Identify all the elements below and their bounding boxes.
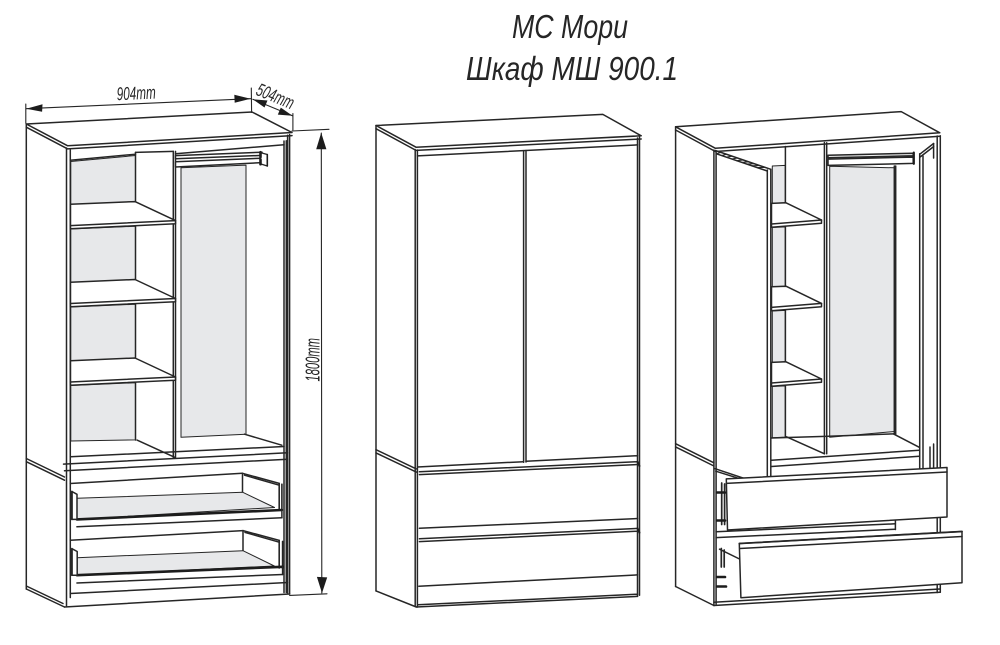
svg-text:504mm: 504mm <box>253 79 297 113</box>
svg-text:904mm: 904mm <box>116 82 156 105</box>
svg-text:Шкаф МШ 900.1: Шкаф МШ 900.1 <box>466 50 678 87</box>
svg-text:1800mm: 1800mm <box>303 338 325 382</box>
svg-text:МС Мори: МС Мори <box>512 8 628 45</box>
